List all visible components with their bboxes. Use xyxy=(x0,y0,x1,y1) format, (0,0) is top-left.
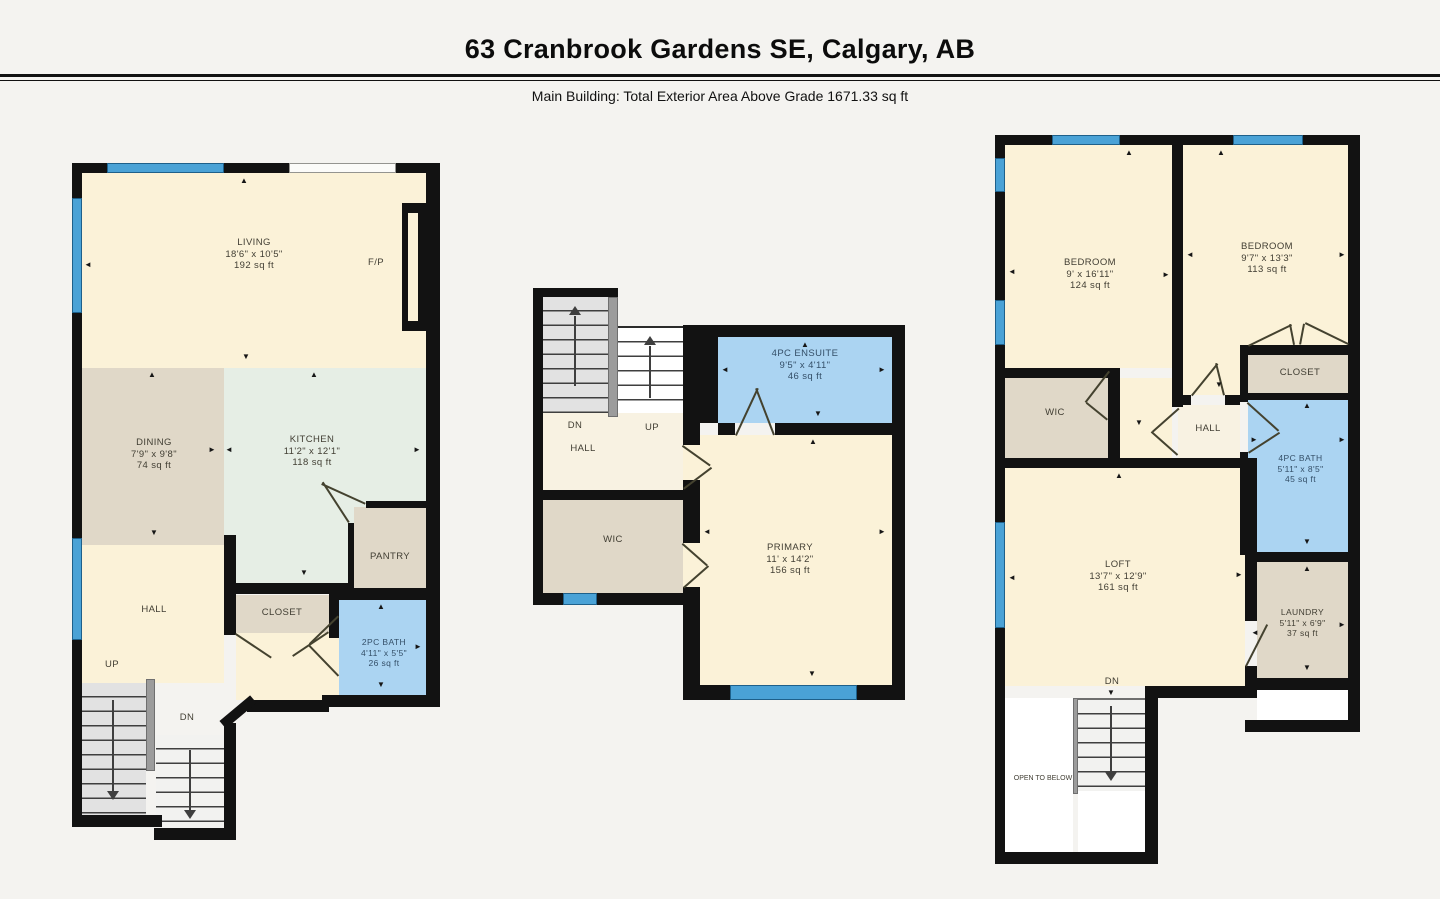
arrow-down-icon: ▼ xyxy=(1303,664,1311,672)
wall xyxy=(995,852,1158,864)
room-area: 192 sq ft xyxy=(184,260,324,272)
arrow-up-icon: ▲ xyxy=(801,341,809,349)
wall xyxy=(995,135,1005,864)
arrow-right-icon: ► xyxy=(1338,436,1346,444)
label-closet: CLOSET xyxy=(1250,367,1350,379)
room-dims: 9'5" x 4'11" xyxy=(725,360,885,372)
divider-thick xyxy=(0,74,1440,77)
arrow-up-icon: ▲ xyxy=(1217,149,1225,157)
arrow-down-icon: ▼ xyxy=(808,670,816,678)
wall xyxy=(1248,552,1353,562)
wall xyxy=(224,723,236,840)
wall xyxy=(1248,393,1353,400)
label-hall: HALL xyxy=(104,604,204,616)
room-name: F/P xyxy=(356,257,396,269)
room-dims: 11'2" x 12'1" xyxy=(242,446,382,458)
wall xyxy=(1108,368,1120,458)
arrow-down-icon: ▼ xyxy=(814,410,822,418)
fireplace-icon xyxy=(406,211,420,323)
label-dn: DN xyxy=(167,712,207,724)
label-living: LIVING 18'6" x 10'5" 192 sq ft xyxy=(184,237,324,272)
window xyxy=(563,593,597,605)
room-name: PRIMARY xyxy=(720,542,860,554)
room-dims: 9' x 16'11" xyxy=(1020,269,1160,281)
arrow-right-icon: ► xyxy=(1338,621,1346,629)
room-name: HALL xyxy=(543,443,623,455)
stair-arrow-line xyxy=(574,316,576,386)
wall xyxy=(700,325,905,337)
arrow-left-icon: ◄ xyxy=(225,446,233,454)
window-screen xyxy=(289,163,396,173)
room-dims: 18'6" x 10'5" xyxy=(184,249,324,261)
wall xyxy=(683,423,700,445)
stair-arrow-head xyxy=(184,810,196,819)
room-dims: 7'9" x 9'8" xyxy=(94,449,214,461)
wall xyxy=(533,288,618,297)
room-area: 161 sq ft xyxy=(1048,582,1188,594)
label-loft: LOFT 13'7" x 12'9" 161 sq ft xyxy=(1048,559,1188,594)
stair-arrow-line xyxy=(112,700,114,793)
window xyxy=(1233,135,1303,145)
label-kitchen: KITCHEN 11'2" x 12'1" 118 sq ft xyxy=(242,434,382,469)
stair-arrow-head xyxy=(569,306,581,315)
arrow-right-icon: ► xyxy=(1338,251,1346,259)
room-name: KITCHEN xyxy=(242,434,382,446)
arrow-up-icon: ▲ xyxy=(809,438,817,446)
room-wic xyxy=(543,500,683,593)
wall xyxy=(1240,345,1248,402)
arrow-up-icon: ▲ xyxy=(1115,472,1123,480)
floor-plan-third: BEDROOM 9' x 16'11" 124 sq ft BEDROOM 9'… xyxy=(995,131,1360,864)
arrow-right-icon: ► xyxy=(414,643,422,651)
window xyxy=(107,163,224,173)
arrow-down-icon: ▼ xyxy=(150,529,158,537)
wall xyxy=(1348,135,1360,732)
wall xyxy=(72,815,162,827)
window xyxy=(730,685,857,700)
room-area: 26 sq ft xyxy=(340,658,428,669)
wall xyxy=(426,163,440,707)
arrow-right-icon: ► xyxy=(878,528,886,536)
room-name: CLOSET xyxy=(1250,367,1350,379)
arrow-left-icon: ◄ xyxy=(84,261,92,269)
wall xyxy=(1240,345,1353,355)
label-fireplace: F/P xyxy=(356,257,396,269)
room-area: 45 sq ft xyxy=(1248,474,1353,485)
label-wic: WIC xyxy=(573,534,653,546)
label-up: UP xyxy=(632,422,672,434)
arrow-up-icon: ▲ xyxy=(148,371,156,379)
wall xyxy=(1145,686,1158,864)
window xyxy=(995,300,1005,345)
floor-plan-main: LIVING 18'6" x 10'5" 192 sq ft F/P DININ… xyxy=(72,155,440,845)
stairs-dn-label: DN xyxy=(1092,676,1132,688)
stair-arrow-head xyxy=(107,791,119,800)
label-hall: HALL xyxy=(543,443,623,455)
arrow-down-icon: ▼ xyxy=(1303,538,1311,546)
arrow-down-icon: ▼ xyxy=(377,681,385,689)
room-name: LOFT xyxy=(1048,559,1188,571)
wall xyxy=(247,700,329,712)
wall xyxy=(718,423,735,435)
room-area: 37 sq ft xyxy=(1245,628,1360,639)
arrow-up-icon: ▲ xyxy=(1125,149,1133,157)
label-wic: WIC xyxy=(1015,407,1095,419)
room-dims: 5'11" x 8'5" xyxy=(1248,464,1353,475)
wall xyxy=(1172,135,1183,407)
label-ensuite: 4PC ENSUITE 9'5" x 4'11" 46 sq ft xyxy=(725,348,885,383)
stair-arrow-head xyxy=(644,336,656,345)
label-up: UP xyxy=(92,659,132,671)
label-open-to-below: OPEN TO BELOW xyxy=(1001,773,1085,785)
arrow-up-icon: ▲ xyxy=(310,371,318,379)
room-area: 124 sq ft xyxy=(1020,280,1160,292)
stair-arrow-line xyxy=(649,346,651,398)
wall xyxy=(322,695,440,707)
room-name: PANTRY xyxy=(352,551,428,563)
label-pantry: PANTRY xyxy=(352,551,428,563)
floorplan-page: { "header": { "title": "63 Cranbrook Gar… xyxy=(0,0,1440,899)
room-name: WIC xyxy=(573,534,653,546)
arrow-up-icon: ▲ xyxy=(377,603,385,611)
arrow-left-icon: ◄ xyxy=(1251,629,1259,637)
wall xyxy=(339,588,426,600)
label-primary: PRIMARY 11' x 14'2" 156 sq ft xyxy=(720,542,860,577)
arrow-left-icon: ◄ xyxy=(1008,574,1016,582)
wall xyxy=(1225,395,1240,405)
label-bedroom-2: BEDROOM 9'7" x 13'3" 113 sq ft xyxy=(1197,241,1337,276)
arrow-down-icon: ▼ xyxy=(300,569,308,577)
arrow-right-icon: ► xyxy=(1162,271,1170,279)
wall xyxy=(154,828,236,840)
stair-arrow-line xyxy=(1110,706,1112,774)
divider-thin xyxy=(0,80,1440,81)
arrow-right-icon: ► xyxy=(878,366,886,374)
arrow-down-icon: ▼ xyxy=(1215,381,1223,389)
wall xyxy=(775,423,892,435)
page-title: 63 Cranbrook Gardens SE, Calgary, AB xyxy=(0,34,1440,65)
room-name: LIVING xyxy=(184,237,324,249)
room-area: 74 sq ft xyxy=(94,460,214,472)
arrow-right-icon: ► xyxy=(413,446,421,454)
stair-rail xyxy=(146,679,155,771)
arrow-down-icon: ▼ xyxy=(1135,419,1143,427)
room-name: 4PC ENSUITE xyxy=(725,348,885,360)
arrow-up-icon: ▲ xyxy=(240,177,248,185)
wall xyxy=(683,480,700,543)
room-dims: 13'7" x 12'9" xyxy=(1048,571,1188,583)
room-name: BEDROOM xyxy=(1197,241,1337,253)
room-area: 113 sq ft xyxy=(1197,264,1337,276)
room-dims: 9'7" x 13'3" xyxy=(1197,253,1337,265)
wall xyxy=(1245,720,1360,732)
room-name: CLOSET xyxy=(232,607,332,619)
stairs-up-label: UP xyxy=(92,659,132,671)
arrow-left-icon: ◄ xyxy=(703,528,711,536)
arrow-right-icon: ► xyxy=(1235,571,1243,579)
wall xyxy=(1245,468,1257,621)
arrow-up-icon: ▲ xyxy=(1303,565,1311,573)
arrow-left-icon: ◄ xyxy=(1008,268,1016,276)
stair-arrow-line xyxy=(189,750,191,812)
arrow-right-icon: ► xyxy=(1250,436,1258,444)
label-closet: CLOSET xyxy=(232,607,332,619)
room-name: WIC xyxy=(1015,407,1095,419)
arrow-right-icon: ► xyxy=(208,446,216,454)
wall xyxy=(1183,395,1191,405)
label-dn: DN xyxy=(1092,676,1132,688)
room-name: DINING xyxy=(94,437,214,449)
page-subtitle: Main Building: Total Exterior Area Above… xyxy=(0,88,1440,104)
stairs-dn-label: DN xyxy=(555,420,595,432)
nook-below-laundry xyxy=(1257,690,1348,720)
label-dn: DN xyxy=(555,420,595,432)
room-area: 156 sq ft xyxy=(720,565,860,577)
room-area: 46 sq ft xyxy=(725,371,885,383)
room-name: HALL xyxy=(1168,423,1248,435)
room-name: LAUNDRY xyxy=(1245,607,1360,618)
label-bath-4pc: 4PC BATH 5'11" x 8'5" 45 sq ft xyxy=(1248,453,1353,485)
wall xyxy=(543,490,683,500)
wall xyxy=(224,535,236,635)
room-name: BEDROOM xyxy=(1020,257,1160,269)
stairs-dn-label: DN xyxy=(167,712,207,724)
floor-plan-second: DN UP HALL 4PC ENSUITE 9'5" x 4'11" 46 s… xyxy=(533,288,905,703)
arrow-left-icon: ◄ xyxy=(721,366,729,374)
wall xyxy=(533,593,683,605)
stair-rail xyxy=(608,297,618,417)
wall xyxy=(683,325,718,423)
room-dims: 11' x 14'2" xyxy=(720,554,860,566)
window xyxy=(995,158,1005,192)
window xyxy=(1052,135,1120,145)
label-bedroom-1: BEDROOM 9' x 16'11" 124 sq ft xyxy=(1020,257,1160,292)
label-hall: HALL xyxy=(1168,423,1248,435)
room-name: HALL xyxy=(104,604,204,616)
wall xyxy=(1145,686,1257,698)
window xyxy=(72,538,82,640)
arrow-up-icon: ▲ xyxy=(1303,402,1311,410)
arrow-down-icon: ▼ xyxy=(242,353,250,361)
wall xyxy=(366,501,426,508)
arrow-left-icon: ◄ xyxy=(1186,251,1194,259)
room-area: 118 sq ft xyxy=(242,457,382,469)
stair-arrow-head xyxy=(1105,772,1117,781)
window xyxy=(995,522,1005,628)
wall xyxy=(533,288,543,605)
wall xyxy=(683,587,700,700)
arrow-down-icon: ▼ xyxy=(1107,689,1115,697)
wall xyxy=(1245,678,1360,690)
wall xyxy=(1005,458,1257,468)
window xyxy=(72,198,82,313)
room-bedroom-1-entry xyxy=(1120,378,1172,458)
label-dining: DINING 7'9" x 9'8" 74 sq ft xyxy=(94,437,214,472)
stairs-up-label: UP xyxy=(632,422,672,434)
room-name: 4PC BATH xyxy=(1248,453,1353,464)
open-to-below-label: OPEN TO BELOW xyxy=(1001,773,1085,785)
wall xyxy=(1005,368,1120,378)
stairwell-floor xyxy=(1078,791,1145,852)
wall xyxy=(892,325,905,700)
room-pantry xyxy=(354,507,426,590)
